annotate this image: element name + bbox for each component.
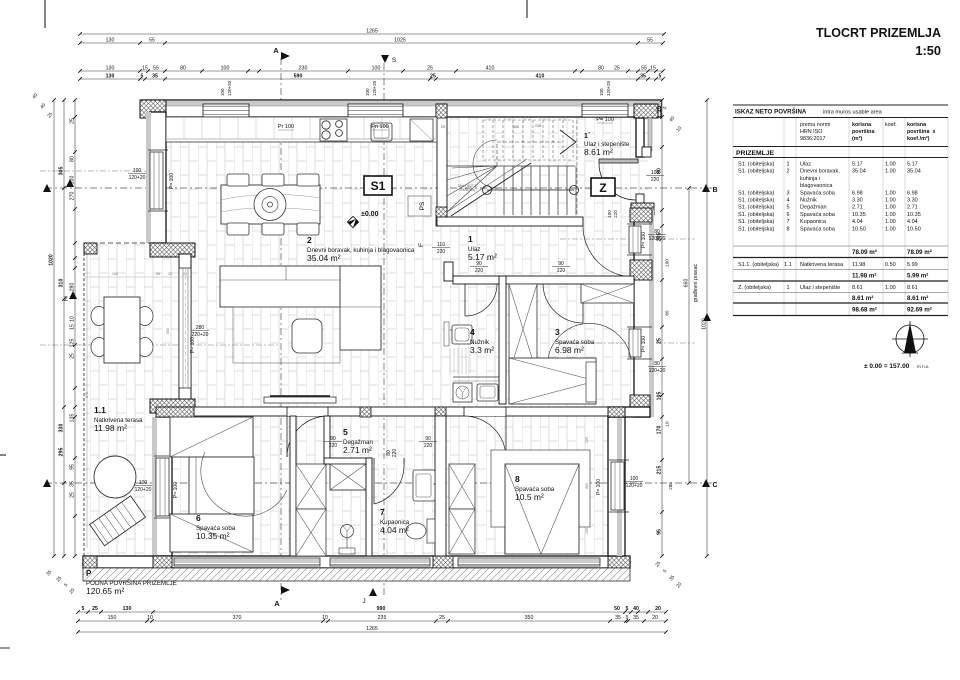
svg-text:220: 220 [424,443,433,449]
svg-text:125: 125 [70,339,76,348]
svg-text:10.35 m²: 10.35 m² [196,531,230,541]
svg-text:2: 2 [307,235,312,245]
svg-text:330: 330 [59,424,65,433]
svg-text:0.50: 0.50 [885,262,896,268]
svg-text:1.1: 1.1 [94,405,106,415]
svg-text:25: 25 [654,560,662,568]
svg-text:100: 100 [220,88,225,96]
svg-text:55: 55 [641,66,647,72]
svg-text:10.50: 10.50 [907,226,921,232]
svg-text:2: 2 [786,169,789,175]
svg-text:55: 55 [149,38,155,44]
svg-text:120.65 m²: 120.65 m² [86,586,124,596]
svg-text:5: 5 [63,582,70,588]
svg-text:35.04: 35.04 [907,169,921,175]
svg-text:A: A [274,599,280,608]
svg-text:1: 1 [786,162,789,168]
svg-text:220: 220 [651,177,660,183]
svg-text:10.5 m²: 10.5 m² [515,492,544,502]
svg-text:5: 5 [82,606,85,612]
svg-text:Z: Z [599,181,606,195]
svg-text:Ulaz: Ulaz [800,162,811,168]
svg-text:90: 90 [476,261,482,267]
svg-text:95: 95 [70,464,76,470]
svg-text:100: 100 [630,476,639,482]
svg-text:Kupaonica: Kupaonica [800,219,827,225]
svg-text:100: 100 [139,480,148,486]
svg-text:korisna: korisna [907,122,927,128]
svg-text:35: 35 [70,481,76,487]
svg-text:8.61: 8.61 [907,285,918,291]
svg-text:A: A [273,46,279,55]
svg-text:Degažman: Degažman [800,205,827,211]
svg-text:ISKAZ NETO POVRŠINA: ISKAZ NETO POVRŠINA [735,108,807,116]
svg-text:35: 35 [615,615,621,621]
svg-text:4: 4 [786,198,789,204]
svg-text:230: 230 [299,66,308,72]
svg-text:100: 100 [221,66,230,72]
svg-text:150: 150 [108,615,117,621]
svg-text:105: 105 [657,392,663,401]
svg-text:1´: 1´ [584,133,591,140]
svg-text:blagovaonica: blagovaonica [800,183,833,189]
svg-text:25: 25 [70,118,76,124]
svg-text:35.04 m²: 35.04 m² [307,253,341,263]
svg-text:25: 25 [92,606,98,612]
svg-text:215: 215 [657,466,663,475]
svg-text:5.17: 5.17 [852,162,863,168]
svg-text:1020: 1020 [49,254,55,266]
svg-text:20: 20 [652,615,658,621]
svg-text:25: 25 [430,74,436,80]
svg-text:35: 35 [668,574,676,582]
svg-text:5.99: 5.99 [907,262,918,268]
svg-text:8: 8 [515,474,520,484]
svg-text:40: 40 [633,606,639,612]
svg-text:25: 25 [46,111,54,119]
svg-text:Z. (obiteljska): Z. (obiteljska) [738,285,771,291]
svg-text:590: 590 [294,74,303,80]
svg-text:10.35: 10.35 [907,212,921,218]
svg-text:35: 35 [45,569,53,577]
svg-text:koef./m²): koef./m²) [907,136,930,142]
svg-text:15: 15 [142,66,148,72]
svg-text:10.35: 10.35 [852,212,866,218]
svg-text:10: 10 [322,615,328,621]
svg-text:6.98 m²: 6.98 m² [555,345,584,355]
svg-text:220: 220 [557,268,566,274]
svg-text:95: 95 [657,529,663,535]
svg-text:5: 5 [662,105,669,111]
svg-text:PRIZEMLJE: PRIZEMLJE [736,150,775,157]
svg-text:25: 25 [55,575,63,583]
svg-text:130: 130 [106,74,115,80]
svg-text:410: 410 [536,74,545,80]
svg-text:4.04 m²: 4.04 m² [380,525,409,535]
svg-text:±0.00: ±0.00 [361,211,379,218]
svg-text:P= 100: P= 100 [641,336,647,352]
svg-text:P= 100: P= 100 [169,173,175,189]
svg-text:25: 25 [70,492,76,498]
svg-text:5: 5 [626,606,629,612]
svg-text:120+20: 120+20 [129,175,146,181]
svg-text:25: 25 [168,272,172,276]
svg-text:10: 10 [675,125,683,133]
svg-text:55: 55 [153,66,159,72]
svg-text:100: 100 [133,168,142,174]
svg-text:HRN ISO: HRN ISO [800,129,822,135]
svg-text:S: S [392,57,397,64]
svg-text:S1. (obiteljska): S1. (obiteljska) [738,226,775,232]
svg-text:kuhinja i: kuhinja i [800,176,820,182]
svg-text:990: 990 [377,606,386,612]
svg-text:40: 40 [39,102,47,110]
svg-text:S1. (obiteljska): S1. (obiteljska) [738,190,775,196]
svg-text:Spavaća soba: Spavaća soba [800,226,836,232]
svg-text:1.00: 1.00 [885,219,896,225]
svg-text:235: 235 [378,615,387,621]
svg-text:3.30: 3.30 [852,198,863,204]
svg-text:100: 100 [372,66,381,72]
svg-text:građevni pravac: građevni pravac [693,264,699,303]
svg-text:C: C [712,482,717,489]
svg-text:Spavaća soba: Spavaća soba [800,212,836,218]
svg-text:100: 100 [607,210,612,218]
svg-text:675: 675 [85,392,89,398]
svg-text:P= 100: P= 100 [596,479,602,495]
svg-text:m n.v.: m n.v. [917,364,929,369]
svg-text:Spavaća soba: Spavaća soba [800,190,836,196]
svg-text:Pn 100: Pn 100 [371,124,388,130]
svg-text:Nužnik: Nužnik [800,198,817,204]
svg-text:1025: 1025 [394,38,406,44]
svg-text:55: 55 [647,38,653,44]
svg-text:40: 40 [668,115,676,123]
svg-text:110: 110 [437,242,445,248]
svg-text:2.71 m²: 2.71 m² [343,445,372,455]
svg-text:10.50: 10.50 [852,226,866,232]
svg-text:7: 7 [380,507,385,517]
svg-text:korisna: korisna [852,122,872,128]
svg-text:25: 25 [657,338,663,344]
svg-text:300: 300 [585,483,589,489]
svg-text:1:50: 1:50 [915,43,941,58]
svg-text:80: 80 [654,361,660,367]
svg-text:220: 220 [392,449,398,458]
svg-text:1.00: 1.00 [885,162,896,168]
svg-text:130: 130 [123,606,132,612]
svg-text:10: 10 [70,316,76,322]
svg-text:3: 3 [555,327,560,337]
svg-text:90: 90 [330,436,336,442]
svg-text:S1. (obiteljska): S1. (obiteljska) [738,198,775,204]
svg-text:5: 5 [343,427,348,437]
svg-text:2.71: 2.71 [852,205,863,211]
svg-text:90: 90 [425,436,431,442]
svg-text:P= 100: P= 100 [190,337,196,353]
svg-text:2.71: 2.71 [907,205,918,211]
svg-text:7: 7 [786,219,789,225]
svg-text:120+20: 120+20 [372,80,377,96]
svg-text:130: 130 [106,38,115,44]
svg-text:100: 100 [585,437,589,443]
svg-text:120+20: 120+20 [626,483,643,489]
svg-text:280: 280 [70,283,76,292]
svg-text:120+20: 120+20 [135,487,152,493]
svg-text:78.09 m²: 78.09 m² [852,249,877,256]
svg-text:površina: površina [852,129,875,135]
svg-text:35: 35 [640,74,646,80]
svg-text:11.98: 11.98 [852,262,865,268]
svg-text:S1. (obiteljska): S1. (obiteljska) [738,162,775,168]
svg-text:80: 80 [180,66,186,72]
svg-text:5: 5 [662,568,669,574]
svg-text:170: 170 [657,426,663,435]
svg-text:220: 220 [437,249,446,255]
svg-text:F: F [418,243,425,247]
svg-text:35: 35 [633,615,639,621]
svg-text:100: 100 [665,259,670,267]
svg-text:65: 65 [665,310,670,316]
svg-text:10: 10 [665,421,670,427]
svg-text:280: 280 [196,325,205,331]
svg-text:6: 6 [196,513,201,523]
svg-text:S1. (obiteljska): S1. (obiteljska) [738,219,775,225]
svg-text:80: 80 [70,156,76,162]
svg-text:S1. (obiteljska): S1. (obiteljska) [738,169,775,175]
svg-text:8.61 m²: 8.61 m² [907,295,928,302]
svg-text:P= 100: P= 100 [641,232,647,248]
svg-text:17x28 (c/s): 17x28 (c/s) [459,188,475,192]
svg-text:25: 25 [657,106,663,112]
svg-text:300: 300 [166,328,170,334]
svg-text:1.1: 1.1 [784,262,792,268]
svg-text:4.04: 4.04 [852,219,863,225]
svg-text:1.00: 1.00 [885,169,896,175]
svg-text:6.98: 6.98 [907,190,918,196]
svg-text:92.69 m²: 92.69 m² [907,307,932,314]
svg-text:150: 150 [112,272,118,276]
svg-text:P= 100: P= 100 [173,482,179,498]
svg-text:25: 25 [439,615,445,621]
svg-text:6: 6 [786,212,789,218]
svg-text:236: 236 [535,124,541,128]
svg-text:Natkrivena terasa: Natkrivena terasa [800,262,844,268]
svg-text:310: 310 [59,279,65,288]
svg-text:5: 5 [786,205,789,211]
svg-text:3.3 m²: 3.3 m² [470,345,494,355]
svg-text:350: 350 [525,615,534,621]
svg-text:35: 35 [152,74,158,80]
svg-text:100: 100 [599,88,604,96]
svg-text:3.30: 3.30 [907,198,918,204]
svg-text:80: 80 [598,66,604,72]
svg-text:8.61 m²: 8.61 m² [852,295,873,302]
svg-text:5: 5 [626,615,629,621]
svg-text:205: 205 [657,233,663,242]
svg-text:P= 100: P= 100 [596,117,614,123]
svg-text:50: 50 [614,606,620,612]
svg-text:285: 285 [668,482,673,490]
svg-text:80: 80 [657,168,663,174]
svg-text:1: 1 [468,234,473,244]
svg-text:TLOCRT PRIZEMLJA: TLOCRT PRIZEMLJA [816,26,941,40]
svg-text:25: 25 [614,66,620,72]
svg-text:P: P [86,569,92,578]
svg-text:1265: 1265 [366,626,378,632]
svg-text:25: 25 [427,66,433,72]
svg-text:1.00: 1.00 [885,226,896,232]
svg-text:5.17: 5.17 [907,162,918,168]
svg-text:Ulaz i stepenište: Ulaz i stepenište [800,285,840,291]
svg-text:15: 15 [70,324,76,330]
svg-text:Pr 100: Pr 100 [278,124,294,130]
svg-text:intra muros usable area: intra muros usable area [823,110,883,116]
svg-text:PS: PS [419,201,426,210]
svg-text:S1: S1 [371,179,386,193]
svg-text:S1. (obiteljska): S1. (obiteljska) [738,205,775,211]
svg-text:660: 660 [684,279,690,288]
svg-text:368: 368 [513,125,519,129]
svg-text:35.04: 35.04 [852,169,866,175]
svg-text:305: 305 [59,167,65,176]
svg-text:370: 370 [233,615,242,621]
svg-text:8.61: 8.61 [852,285,863,291]
svg-text:J: J [362,598,365,605]
svg-text:98.68 m²: 98.68 m² [852,307,877,314]
svg-text:4.04: 4.04 [907,219,918,225]
svg-text:10: 10 [147,615,153,621]
svg-text:35: 35 [183,272,187,276]
svg-text:20: 20 [68,587,76,595]
svg-text:koef.: koef. [885,122,897,128]
svg-text:35: 35 [156,272,160,276]
svg-text:4: 4 [470,327,475,337]
svg-text:B: B [712,187,717,194]
svg-text:40: 40 [31,92,39,100]
svg-text:220: 220 [613,210,618,218]
svg-text:410: 410 [486,66,495,72]
svg-text:5: 5 [141,74,144,80]
svg-text:120+20: 120+20 [649,368,666,374]
svg-text:S1.1. (obiteljska): S1.1. (obiteljska) [738,262,779,268]
svg-text:9836:2017: 9836:2017 [800,136,825,142]
svg-text:5.99 m²: 5.99 m² [907,273,928,280]
svg-text:11.98 m²: 11.98 m² [94,423,127,433]
svg-text:± 0.00 = 157.00: ± 0.00 = 157.00 [864,363,910,370]
svg-text:3: 3 [786,190,789,196]
svg-text:1.00: 1.00 [885,198,896,204]
svg-text:25: 25 [441,125,445,129]
svg-text:8: 8 [786,226,789,232]
svg-text:1.00: 1.00 [885,285,896,291]
svg-text:135: 135 [70,414,76,423]
svg-text:8.61 m²: 8.61 m² [584,147,613,157]
svg-text:1: 1 [786,285,789,291]
svg-text:100: 100 [585,528,589,534]
svg-text:1.00: 1.00 [885,212,896,218]
svg-text:S1. (obiteljska): S1. (obiteljska) [738,212,775,218]
svg-text:220: 220 [475,268,484,274]
svg-text:130: 130 [106,66,115,72]
svg-text:11.98 m²: 11.98 m² [852,273,876,280]
svg-text:20: 20 [675,581,683,589]
svg-text:površina x: površina x [907,129,935,135]
svg-text:5: 5 [659,74,662,80]
svg-text:prema normi: prema normi [800,122,830,128]
svg-text:Dnevni boravak,: Dnevni boravak, [800,169,840,175]
svg-text:1.00: 1.00 [885,205,896,211]
svg-text:Z: Z [64,297,68,303]
svg-text:120+20: 120+20 [227,80,232,96]
svg-text:295: 295 [59,448,65,457]
svg-text:220: 220 [329,443,338,449]
svg-text:5.17 m²: 5.17 m² [468,252,497,262]
svg-text:100: 100 [365,88,370,96]
svg-text:78.09 m²: 78.09 m² [907,249,932,256]
svg-text:120+20: 120+20 [606,80,611,96]
svg-text:(m²): (m²) [852,136,862,142]
svg-text:6.98: 6.98 [852,190,863,196]
svg-text:270: 270 [70,192,76,201]
svg-text:20: 20 [655,606,661,612]
svg-text:1.00: 1.00 [885,190,896,196]
svg-text:15: 15 [650,66,656,72]
svg-text:90: 90 [558,261,564,267]
svg-text:1265: 1265 [366,29,378,35]
svg-text:25: 25 [70,353,76,359]
